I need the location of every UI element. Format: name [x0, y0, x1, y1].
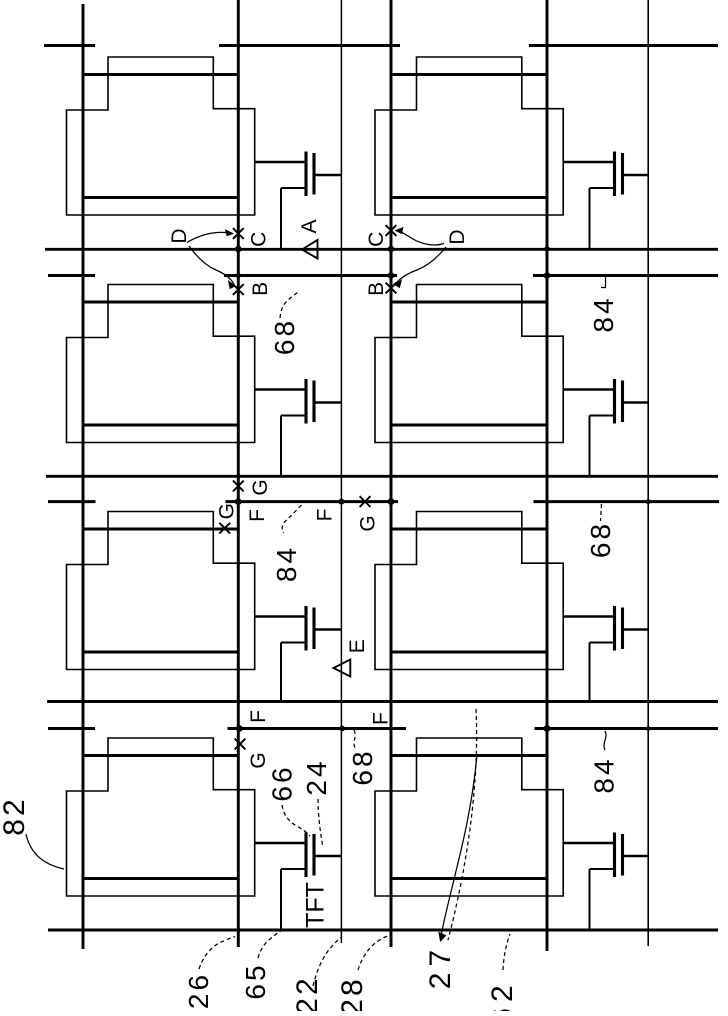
- svg-text:C: C: [365, 232, 388, 247]
- svg-text:F: F: [314, 509, 337, 522]
- svg-text:68: 68: [347, 748, 378, 785]
- svg-text:G: G: [357, 515, 380, 531]
- svg-text:E: E: [346, 639, 369, 653]
- svg-text:F: F: [247, 710, 270, 723]
- svg-text:A: A: [298, 219, 321, 233]
- svg-text:27: 27: [424, 944, 457, 989]
- svg-text:68: 68: [269, 318, 300, 355]
- svg-text:B: B: [249, 282, 272, 296]
- svg-text:84: 84: [589, 756, 620, 793]
- svg-text:F: F: [246, 509, 269, 522]
- svg-text:24: 24: [301, 758, 332, 795]
- svg-text:68: 68: [585, 521, 616, 558]
- svg-text:62: 62: [486, 979, 519, 1011]
- svg-text:D: D: [446, 229, 469, 244]
- svg-text:84: 84: [588, 295, 619, 332]
- svg-text:26: 26: [183, 972, 214, 1009]
- svg-text:TFT: TFT: [302, 882, 330, 928]
- svg-text:22: 22: [291, 975, 324, 1011]
- svg-text:C: C: [248, 232, 271, 247]
- svg-text:D: D: [168, 228, 191, 243]
- svg-text:82: 82: [0, 796, 31, 835]
- svg-text:F: F: [370, 712, 393, 725]
- svg-text:G: G: [249, 479, 272, 495]
- svg-text:65: 65: [240, 962, 271, 999]
- svg-text:28: 28: [336, 976, 369, 1011]
- svg-text:66: 66: [267, 764, 298, 801]
- svg-text:B: B: [365, 282, 388, 296]
- svg-text:G: G: [216, 503, 239, 519]
- svg-text:84: 84: [271, 545, 302, 582]
